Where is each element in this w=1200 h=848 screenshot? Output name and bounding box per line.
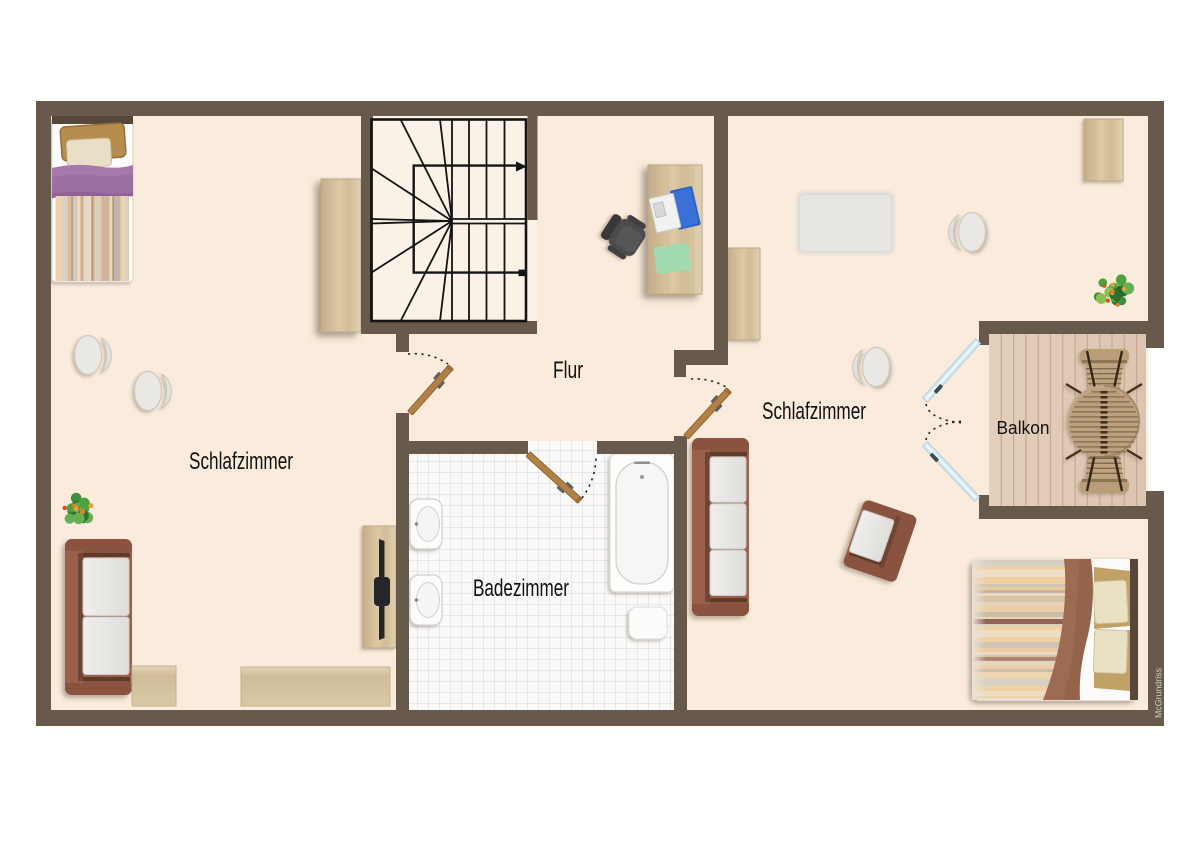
svg-text:McGrundriss: McGrundriss <box>1154 668 1165 718</box>
svg-text:Schlafzimmer: Schlafzimmer <box>762 398 866 425</box>
svg-text:Balkon: Balkon <box>997 417 1050 438</box>
svg-text:Badezimmer: Badezimmer <box>473 575 569 602</box>
svg-text:Schlafzimmer: Schlafzimmer <box>189 448 293 475</box>
svg-text:Flur: Flur <box>553 357 583 384</box>
